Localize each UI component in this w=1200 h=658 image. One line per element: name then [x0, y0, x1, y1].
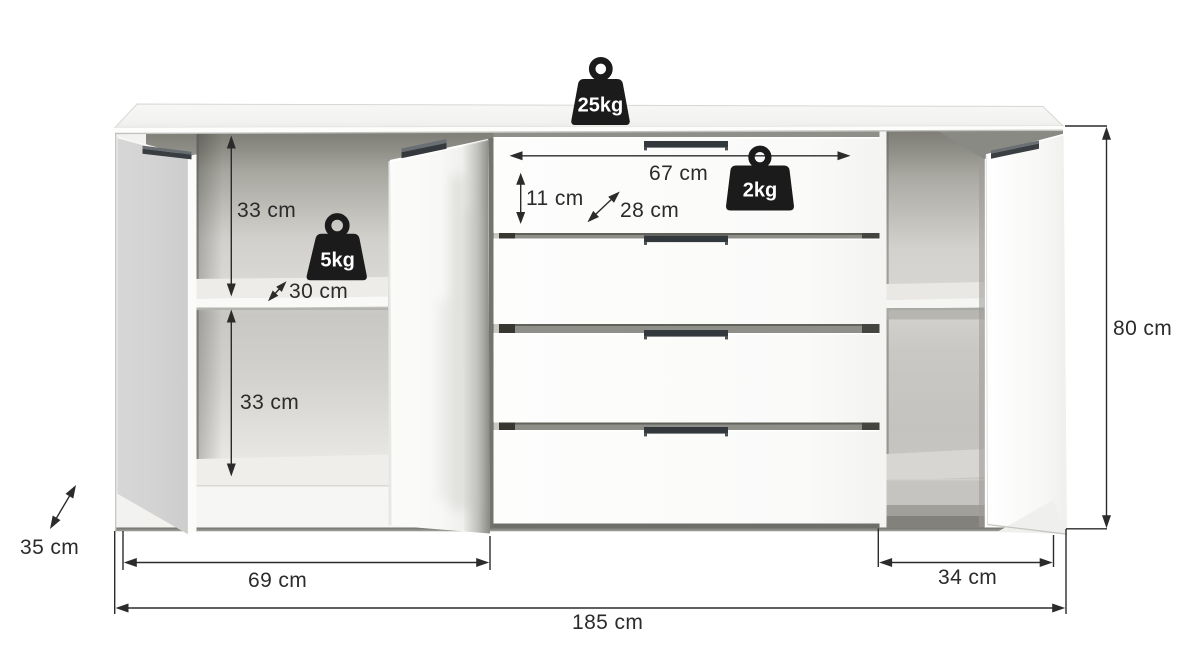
- svg-text:25kg: 25kg: [578, 95, 624, 117]
- svg-text:28 cm: 28 cm: [620, 199, 679, 222]
- svg-text:30 cm: 30 cm: [289, 280, 348, 303]
- svg-text:11 cm: 11 cm: [526, 187, 584, 210]
- svg-text:80 cm: 80 cm: [1113, 317, 1172, 340]
- svg-text:69 cm: 69 cm: [248, 569, 307, 592]
- svg-text:67 cm: 67 cm: [649, 162, 708, 185]
- svg-text:185 cm: 185 cm: [572, 611, 643, 634]
- svg-text:33 cm: 33 cm: [240, 391, 299, 414]
- svg-text:2kg: 2kg: [743, 180, 777, 202]
- svg-text:33 cm: 33 cm: [237, 199, 296, 222]
- svg-text:34 cm: 34 cm: [938, 566, 997, 589]
- svg-text:5kg: 5kg: [320, 250, 354, 272]
- svg-text:35 cm: 35 cm: [20, 536, 79, 559]
